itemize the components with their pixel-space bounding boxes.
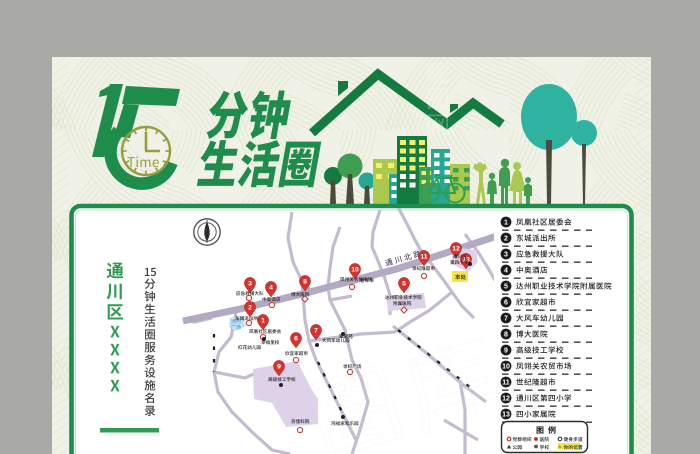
svg-text:5: 5 [402, 281, 406, 288]
svg-text:2: 2 [504, 236, 508, 243]
svg-text:10: 10 [351, 267, 359, 274]
svg-text:9: 9 [504, 348, 508, 355]
svg-text:1: 1 [504, 220, 508, 227]
svg-text:7: 7 [504, 316, 508, 323]
svg-text:11: 11 [502, 380, 510, 387]
svg-text:8: 8 [504, 332, 508, 339]
svg-text:2: 2 [248, 305, 252, 312]
svg-text:8: 8 [303, 279, 307, 286]
svg-text:6: 6 [504, 300, 508, 307]
svg-text:3: 3 [248, 281, 252, 288]
svg-text:4: 4 [504, 268, 508, 275]
svg-text:7: 7 [314, 328, 318, 335]
svg-text:5: 5 [504, 284, 508, 291]
svg-text:12: 12 [452, 246, 460, 253]
svg-text:9: 9 [277, 364, 281, 371]
svg-text:3: 3 [504, 252, 508, 259]
svg-text:4: 4 [269, 285, 273, 292]
svg-text:13: 13 [502, 412, 510, 419]
svg-text:11: 11 [420, 254, 427, 261]
svg-text:12: 12 [502, 396, 510, 403]
svg-text:6: 6 [294, 336, 298, 343]
svg-text:10: 10 [502, 364, 510, 371]
svg-text:1: 1 [261, 318, 265, 325]
